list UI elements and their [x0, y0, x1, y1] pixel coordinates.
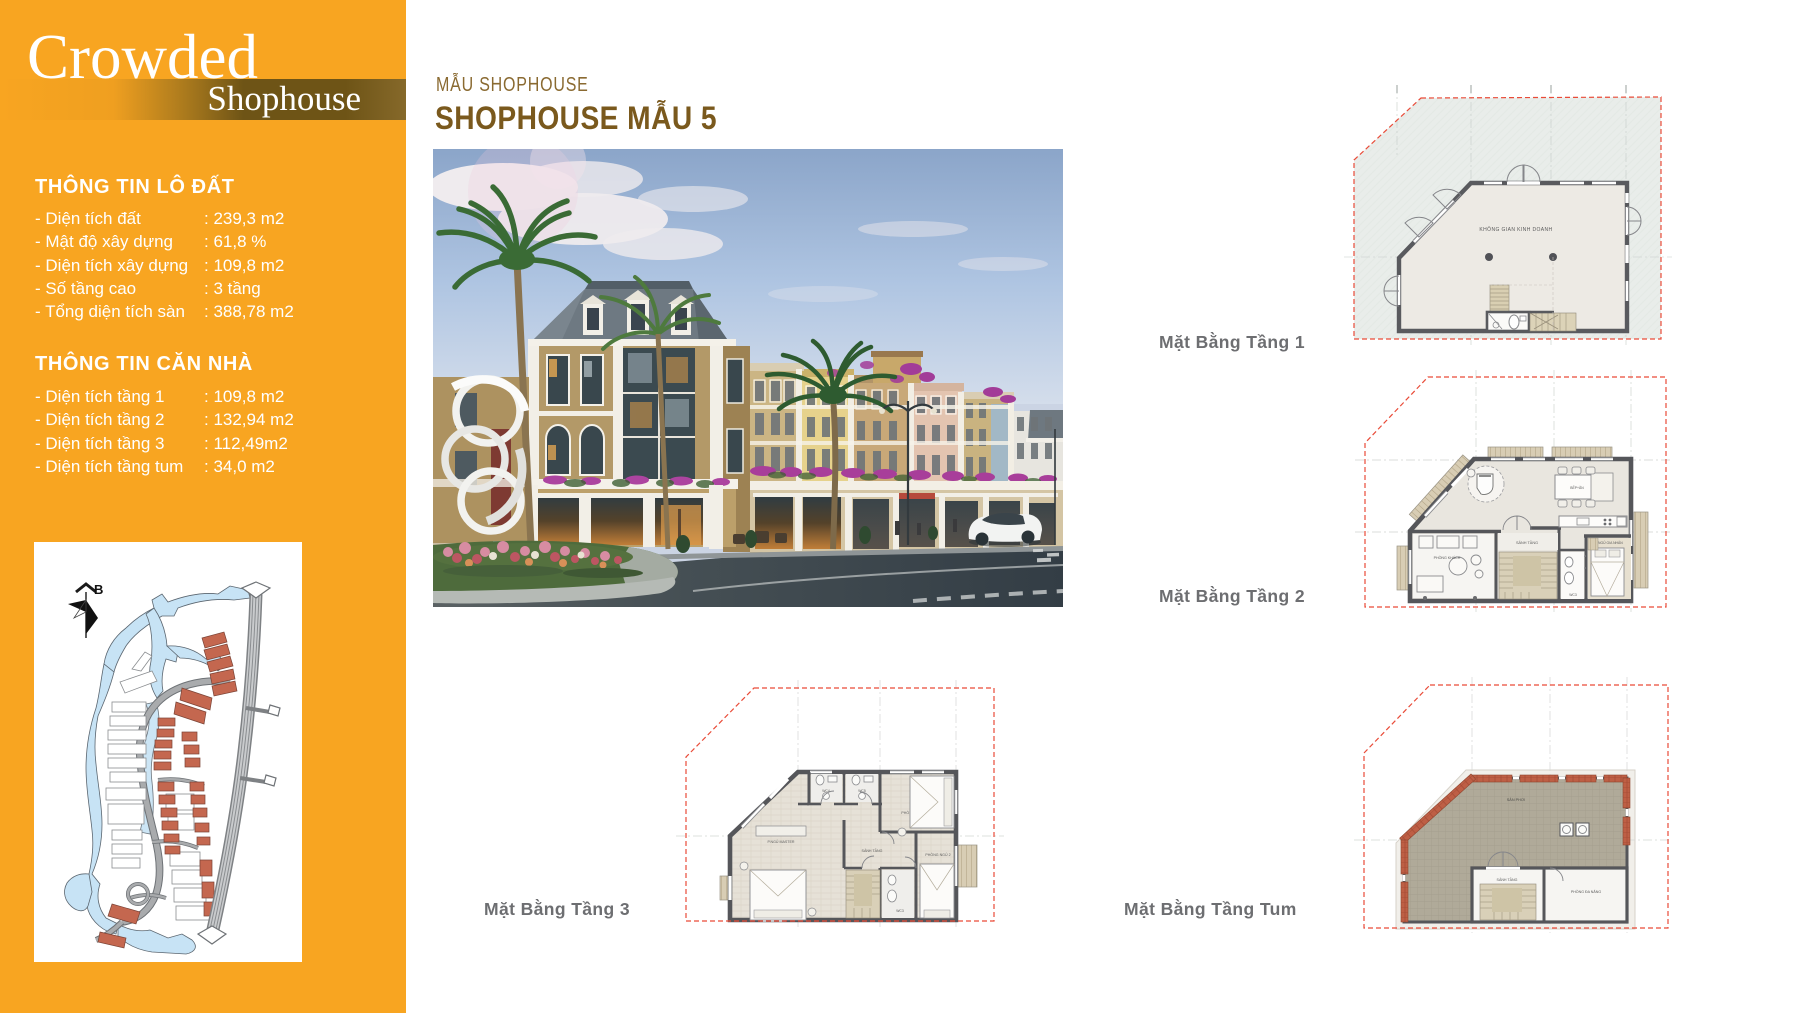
- svg-text:PHÒNG NGỦ 2: PHÒNG NGỦ 2: [925, 852, 950, 857]
- svg-text:B: B: [94, 582, 103, 597]
- svg-text:PHÒNG ĐA NĂNG: PHÒNG ĐA NĂNG: [1571, 889, 1602, 894]
- svg-text:WC3: WC3: [1569, 593, 1577, 597]
- svg-text:PHÒNG KHÁCH: PHÒNG KHÁCH: [1434, 555, 1461, 560]
- svg-text:KHÔNG GIAN KINH DOANH: KHÔNG GIAN KINH DOANH: [1479, 226, 1552, 233]
- svg-text:P.NGỦ GIA NHÂN: P.NGỦ GIA NHÂN: [1595, 540, 1623, 545]
- svg-text:P.NGỦ MASTER: P.NGỦ MASTER: [768, 839, 795, 844]
- svg-text:SẢNH TẦNG: SẢNH TẦNG: [1516, 540, 1538, 545]
- svg-text:SẢNH TẦNG: SẢNH TẦNG: [862, 848, 883, 853]
- svg-text:WC3: WC3: [896, 909, 904, 913]
- svg-text:SẢNH TẦNG: SẢNH TẦNG: [1497, 877, 1518, 882]
- svg-text:BẾP+ĂN: BẾP+ĂN: [1570, 485, 1584, 490]
- svg-text:SÂN PHƠI: SÂN PHƠI: [1507, 797, 1525, 802]
